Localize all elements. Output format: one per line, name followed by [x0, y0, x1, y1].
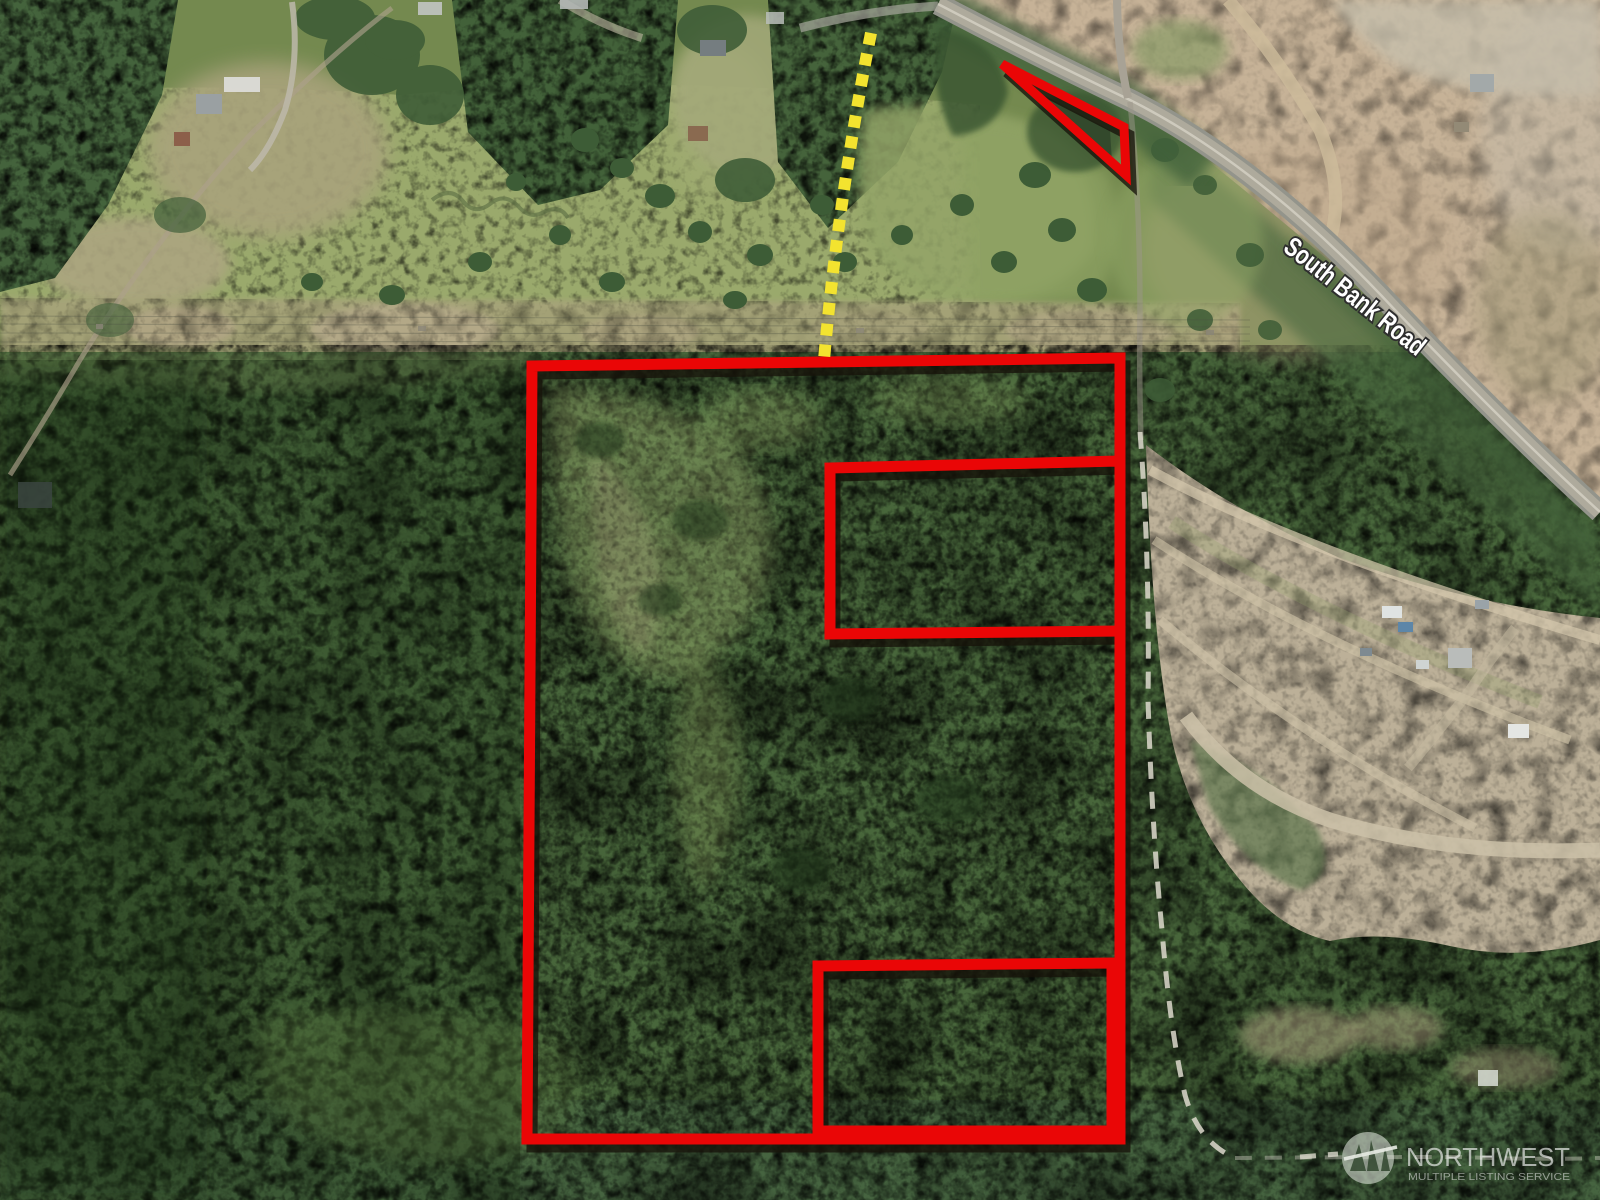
svg-text:NORTHWEST: NORTHWEST: [1406, 1142, 1570, 1172]
svg-text:MULTIPLE LISTING SERVICE: MULTIPLE LISTING SERVICE: [1408, 1171, 1570, 1183]
